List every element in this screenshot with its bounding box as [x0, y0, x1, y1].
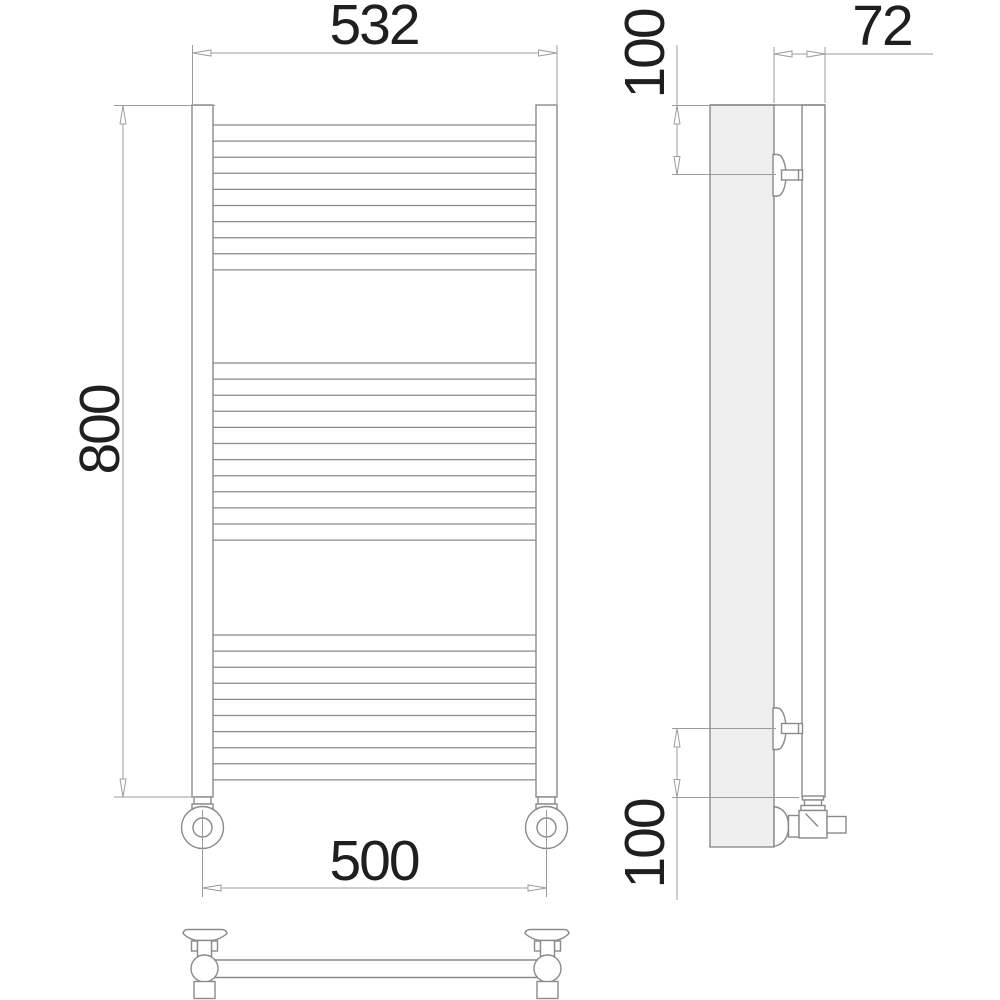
- valve-collar: [805, 800, 822, 806]
- side-view: [710, 105, 846, 847]
- post-right: [536, 105, 557, 797]
- arrowhead: [774, 51, 792, 57]
- post-left: [192, 105, 213, 797]
- valve-flange-lower: [801, 806, 825, 811]
- dim-top-offset-label: 100: [613, 9, 677, 98]
- valve-cone-step: [789, 816, 800, 838]
- valve-spout: [827, 817, 846, 834]
- dim-bottom-offset-label: 100: [613, 799, 677, 888]
- bottom-view: [183, 930, 569, 999]
- valve-cone-cover: [774, 807, 789, 847]
- dim-height-label: 800: [68, 385, 132, 474]
- dim-depth-label: 72: [852, 0, 911, 58]
- arrowhead: [539, 50, 558, 56]
- dim-top-width: 532: [193, 0, 558, 104]
- arrowhead: [120, 779, 126, 797]
- arrowhead: [674, 106, 680, 125]
- arrowhead: [120, 106, 126, 125]
- side-profile-panel: [710, 105, 774, 847]
- arrowhead: [193, 50, 212, 56]
- front-view: [182, 105, 568, 849]
- technical-drawing: 532 800 500 72 100: [0, 0, 1000, 1000]
- arrowhead: [203, 885, 222, 891]
- arrowhead: [674, 157, 680, 175]
- bottom-post-left: [183, 930, 227, 999]
- dim-bottom-width-label: 500: [329, 829, 418, 893]
- wall-bracket-top: [773, 155, 803, 197]
- arrowhead: [807, 51, 825, 57]
- dim-depth: 72: [774, 0, 933, 103]
- side-post-tube: [802, 105, 825, 797]
- arrowhead: [674, 780, 680, 798]
- dim-top-width-label: 532: [329, 0, 418, 57]
- arrowhead: [674, 729, 680, 748]
- dim-bottom-width: 500: [203, 810, 547, 897]
- bottom-post-right: [525, 930, 569, 999]
- arrowhead: [528, 885, 547, 891]
- wall-bracket-bottom: [773, 708, 803, 750]
- front-rungs: [213, 125, 536, 780]
- valve-body: [799, 811, 827, 839]
- bottom-valve-assembly: [774, 796, 846, 847]
